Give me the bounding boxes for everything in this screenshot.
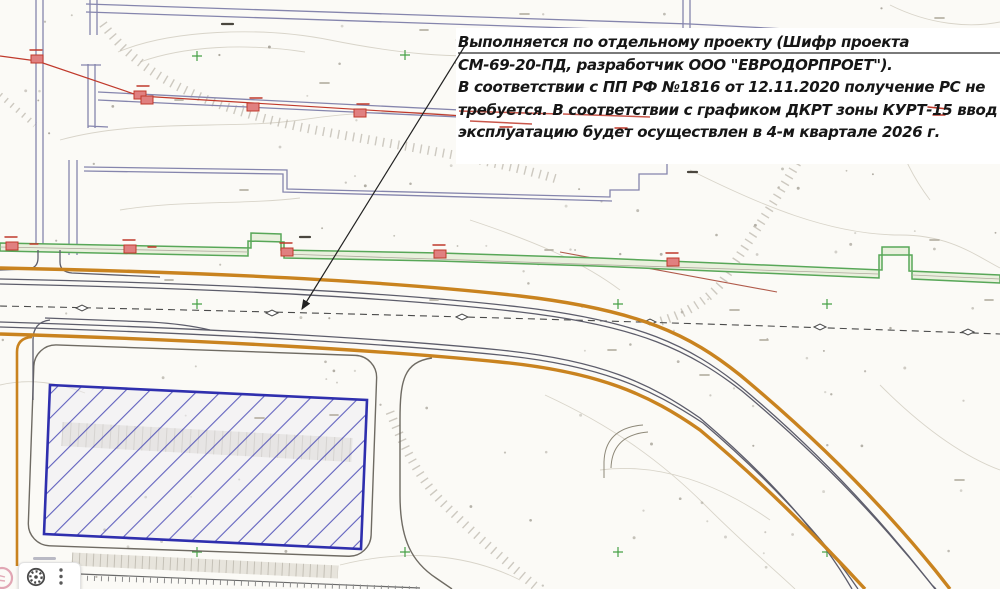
annotation-line: В соответствии с ПП РФ №1816 от 12.11.20…	[458, 76, 1000, 99]
annotation-line: эксплуатацию будет осуществлен в 4-м ква…	[458, 121, 1000, 144]
annotation-line: СМ-69-20-ПД, разработчик ООО "ЕВРОДОРПРО…	[458, 54, 1000, 77]
annotation-callout: Выполняется по отдельному проекту (Шифр …	[458, 31, 1000, 144]
card-tab	[33, 557, 56, 560]
building-footprint	[44, 385, 367, 549]
annotation-line: требуется. В соответствии с графиком ДКР…	[458, 99, 1000, 122]
floating-toolbar	[18, 562, 81, 589]
vertical-ellipsis-icon[interactable]	[59, 568, 62, 584]
pink-stamp-icon	[0, 566, 16, 589]
plan-viewport: Выполняется по отдельному проекту (Шифр …	[0, 0, 1000, 589]
annotation-line: Выполняется по отдельному проекту (Шифр …	[458, 31, 1000, 54]
gear-icon[interactable]	[28, 569, 44, 585]
